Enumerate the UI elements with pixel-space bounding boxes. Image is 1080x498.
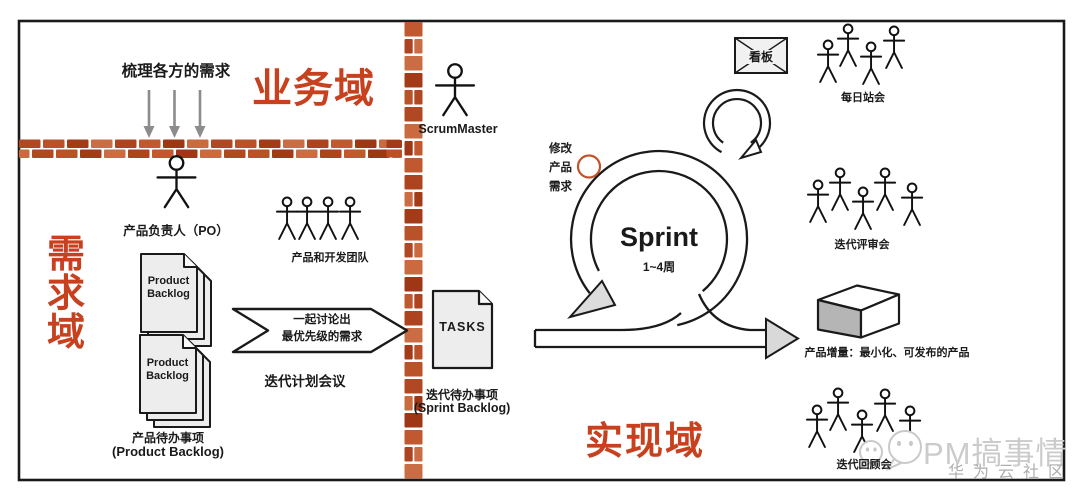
sprint-loop-icon xyxy=(535,151,798,358)
backlog-caption-en: (Product Backlog) xyxy=(104,444,232,459)
kanban-label: 看板 xyxy=(747,50,775,64)
watermark-community: 华为云社区 xyxy=(948,458,1073,482)
scrum-master-caption: ScrumMaster xyxy=(418,122,498,136)
kanban-label-wrap: 看板 xyxy=(735,48,787,65)
backlog-doc2-label: Product Backlog xyxy=(140,357,195,383)
change-note-line2: 产品 xyxy=(549,159,572,178)
daily-standup-team-icon xyxy=(818,25,904,84)
sprint-backlog-caption-en: (Sprint Backlog) xyxy=(412,401,512,415)
change-note-line1: 修改 xyxy=(549,140,572,159)
team-caption: 产品和开发团队 xyxy=(277,249,383,265)
backlog-doc1-label: Product Backlog xyxy=(141,275,196,301)
planning-caption: 迭代计划会议 xyxy=(250,370,360,390)
change-note: 修改 产品 需求 xyxy=(549,140,572,197)
daily-standup-caption: 每日站会 xyxy=(818,89,908,105)
scrum-process-diagram: 梳理各方的需求 业务域 产品负责人（PO） 需求域 Product Backlo… xyxy=(0,0,1080,498)
product-dev-team-icon xyxy=(277,198,360,239)
tasks-doc-label: TASKS xyxy=(433,320,492,334)
review-caption: 迭代评审会 xyxy=(816,236,908,252)
po-stick-figure-icon xyxy=(158,156,196,207)
scrummaster-stick-figure-icon xyxy=(436,64,474,115)
incoming-requirements-arrows-icon xyxy=(144,90,206,138)
domain-implementation: 实现域 xyxy=(585,410,705,465)
review-team-icon xyxy=(808,169,922,229)
domain-requirements: 需求域 xyxy=(45,236,87,353)
chevron-text-line1: 一起讨论出 xyxy=(262,311,382,327)
increment-caption: 产品增量：最小化、可发布的产品 xyxy=(799,344,975,360)
change-request-circle-icon xyxy=(578,156,600,178)
domain-business: 业务域 xyxy=(252,56,375,114)
daily-loop-icon xyxy=(704,90,770,158)
sprint-title: Sprint xyxy=(609,222,709,253)
brick-wall-horizontal xyxy=(19,140,402,159)
change-note-line3: 需求 xyxy=(549,178,572,197)
groom-note: 梳理各方的需求 xyxy=(110,59,242,81)
po-caption: 产品负责人（PO） xyxy=(116,220,236,239)
chevron-text-line2: 最优先级的需求 xyxy=(262,328,382,344)
increment-box-icon xyxy=(818,286,899,338)
sprint-duration: 1~4周 xyxy=(609,258,709,275)
retro-caption: 迭代回顾会 xyxy=(818,456,910,472)
